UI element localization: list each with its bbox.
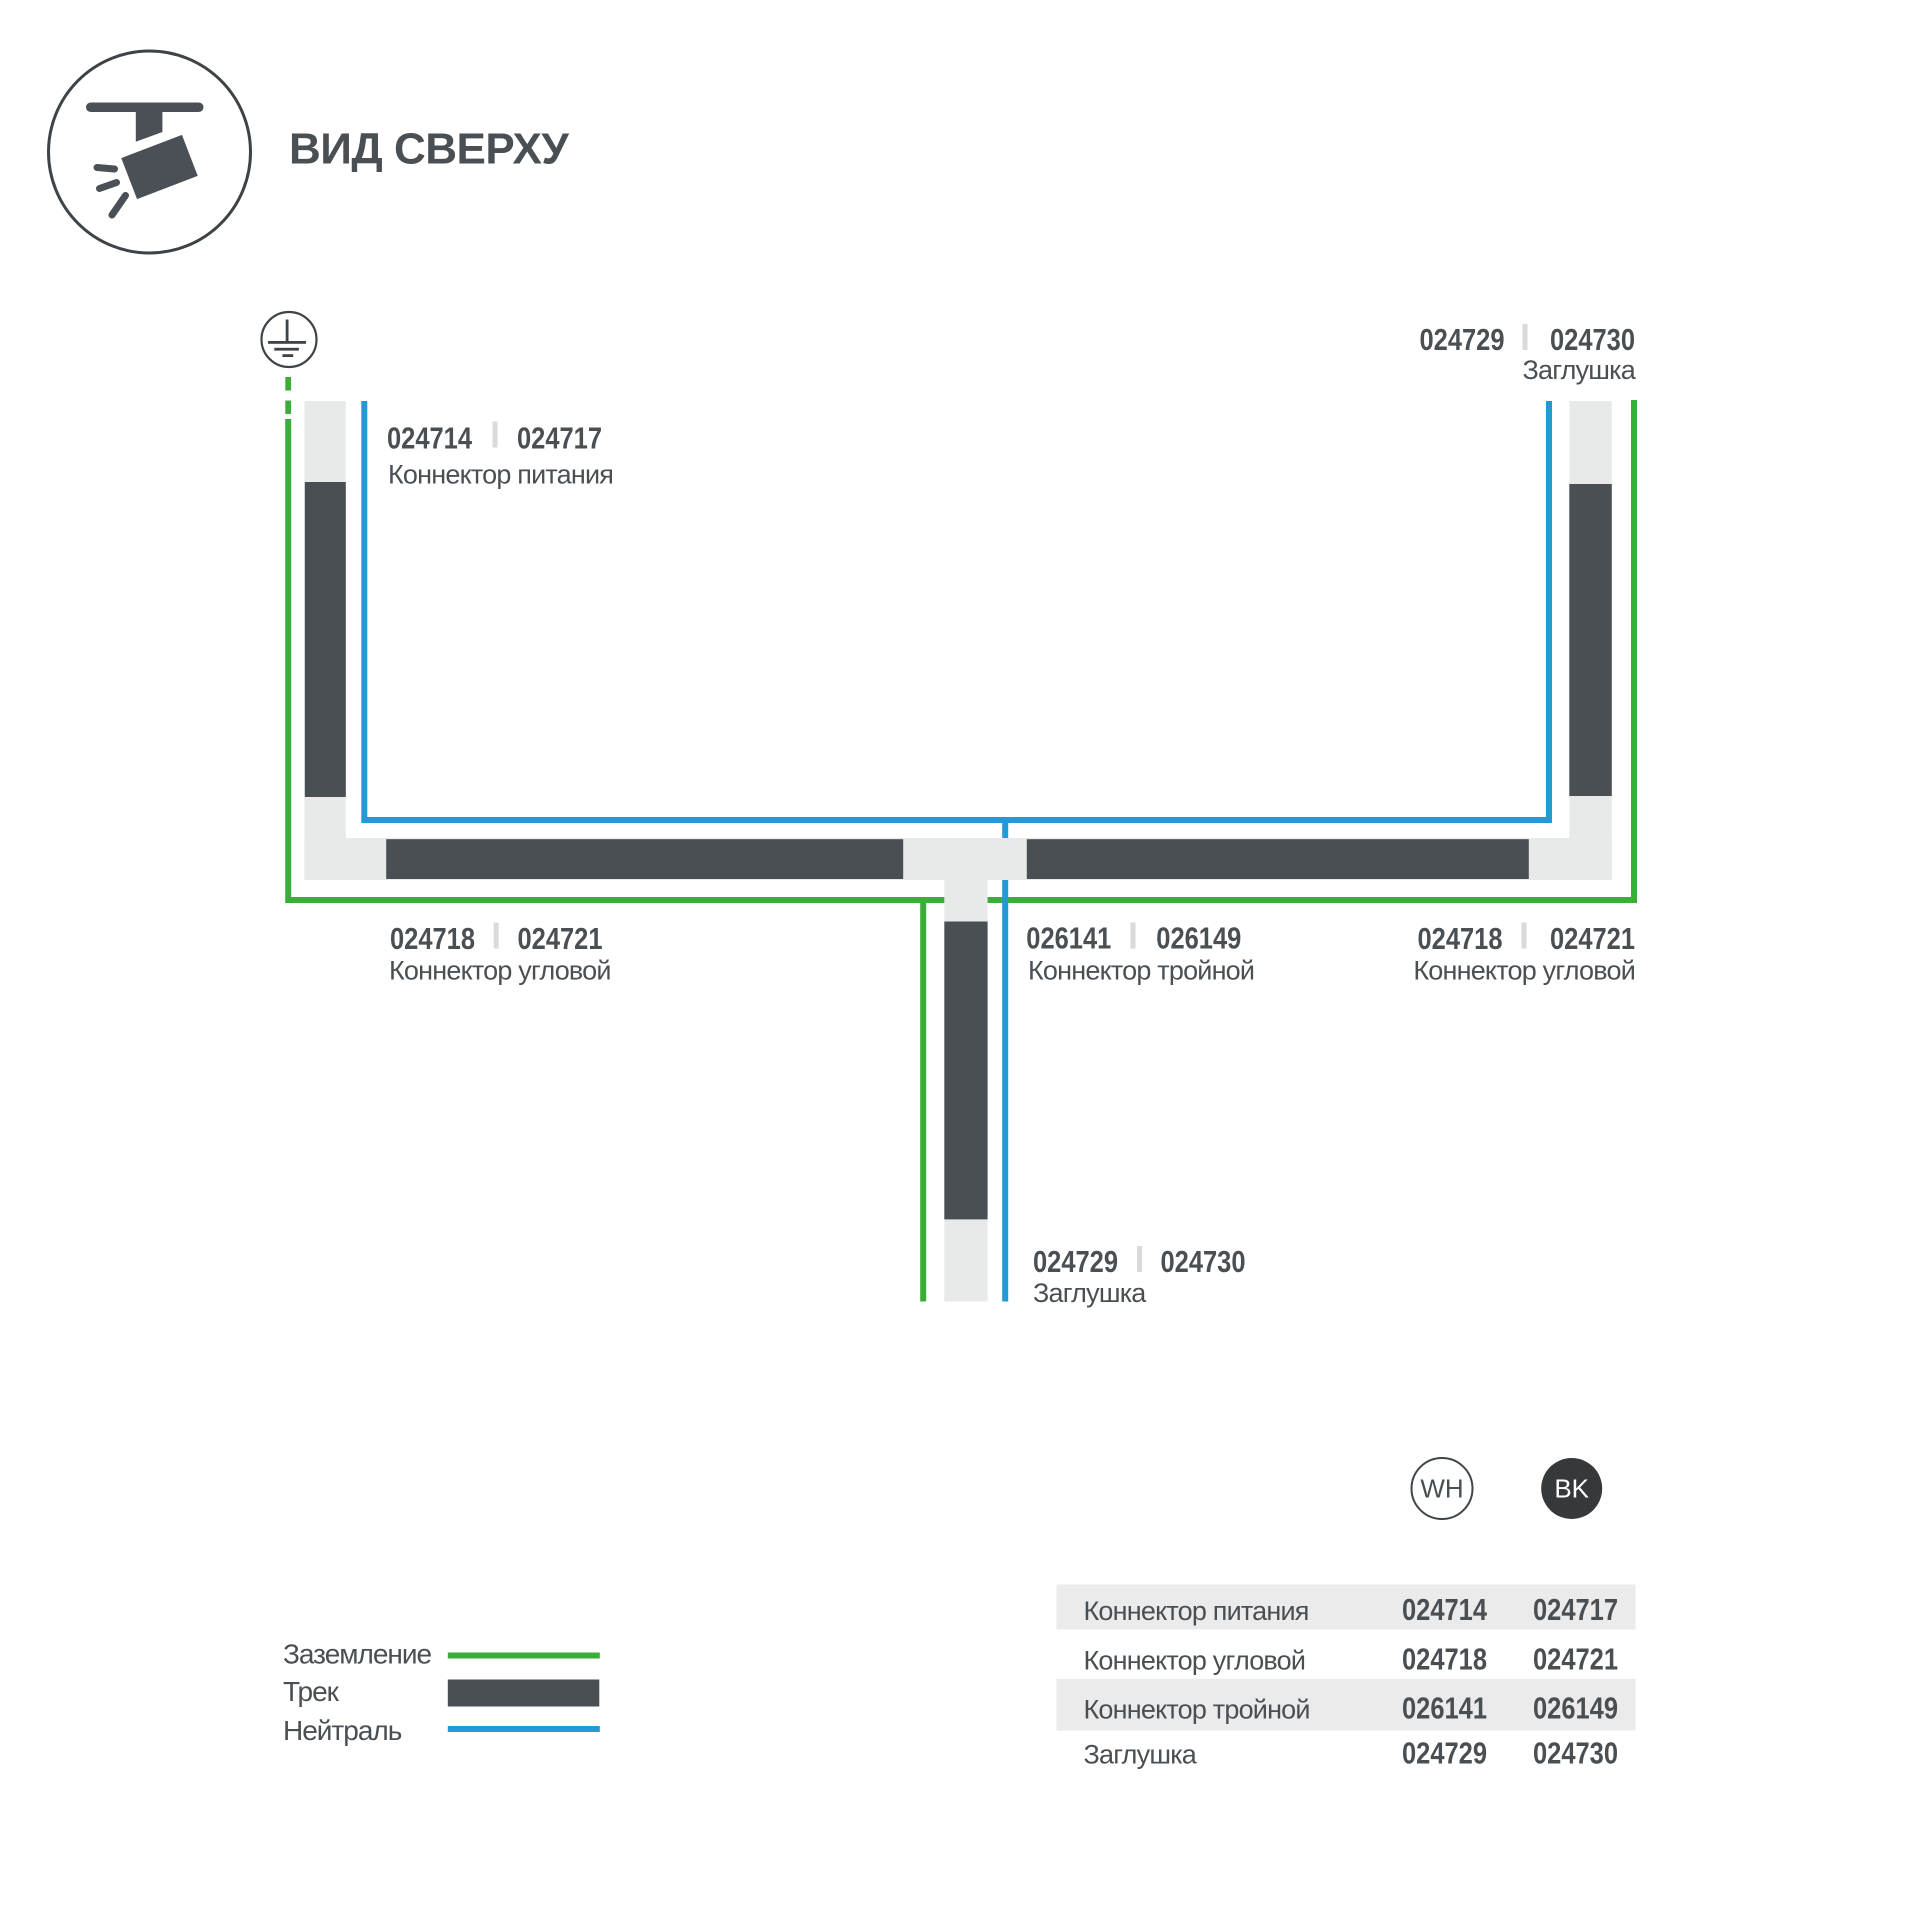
svg-text:Нейтраль: Нейтраль [283, 1715, 402, 1746]
svg-text:Коннектор угловой: Коннектор угловой [1084, 1646, 1306, 1676]
svg-text:024714: 024714 [387, 421, 473, 456]
svg-text:024730: 024730 [1533, 1736, 1618, 1771]
svg-text:024714: 024714 [1402, 1592, 1488, 1627]
svg-text:Заземление: Заземление [283, 1639, 432, 1670]
svg-text:024721: 024721 [518, 921, 603, 956]
svg-text:026141: 026141 [1026, 921, 1111, 956]
svg-text:Заглушка: Заглушка [1084, 1740, 1198, 1770]
svg-text:Трек: Трек [283, 1676, 340, 1707]
svg-text:Заглушка: Заглушка [1033, 1278, 1147, 1308]
svg-text:Коннектор тройной: Коннектор тройной [1084, 1695, 1310, 1725]
svg-text:024730: 024730 [1550, 322, 1635, 357]
svg-text:024717: 024717 [517, 421, 602, 456]
svg-text:026141: 026141 [1402, 1691, 1487, 1726]
svg-text:024718: 024718 [1418, 921, 1503, 956]
svg-text:026149: 026149 [1533, 1691, 1618, 1726]
svg-text:Коннектор тройной: Коннектор тройной [1028, 956, 1254, 986]
svg-text:Коннектор питания: Коннектор питания [1084, 1596, 1309, 1626]
svg-text:Коннектор угловой: Коннектор угловой [389, 956, 611, 986]
svg-text:Заглушка: Заглушка [1522, 355, 1636, 385]
svg-text:024721: 024721 [1533, 1642, 1618, 1677]
svg-text:BK: BK [1554, 1474, 1589, 1504]
svg-text:024718: 024718 [390, 921, 475, 956]
svg-text:024730: 024730 [1161, 1244, 1246, 1279]
svg-text:Коннектор угловой: Коннектор угловой [1413, 956, 1635, 986]
svg-text:026149: 026149 [1156, 921, 1241, 956]
svg-text:Коннектор питания: Коннектор питания [388, 460, 613, 490]
svg-text:ВИД СВЕРХУ: ВИД СВЕРХУ [289, 125, 569, 174]
svg-text:024729: 024729 [1402, 1736, 1487, 1771]
svg-text:024718: 024718 [1402, 1642, 1487, 1677]
svg-text:024721: 024721 [1550, 921, 1635, 956]
svg-text:WH: WH [1420, 1474, 1463, 1504]
svg-text:024729: 024729 [1420, 322, 1505, 357]
svg-text:024729: 024729 [1033, 1244, 1118, 1279]
svg-text:024717: 024717 [1533, 1592, 1618, 1627]
